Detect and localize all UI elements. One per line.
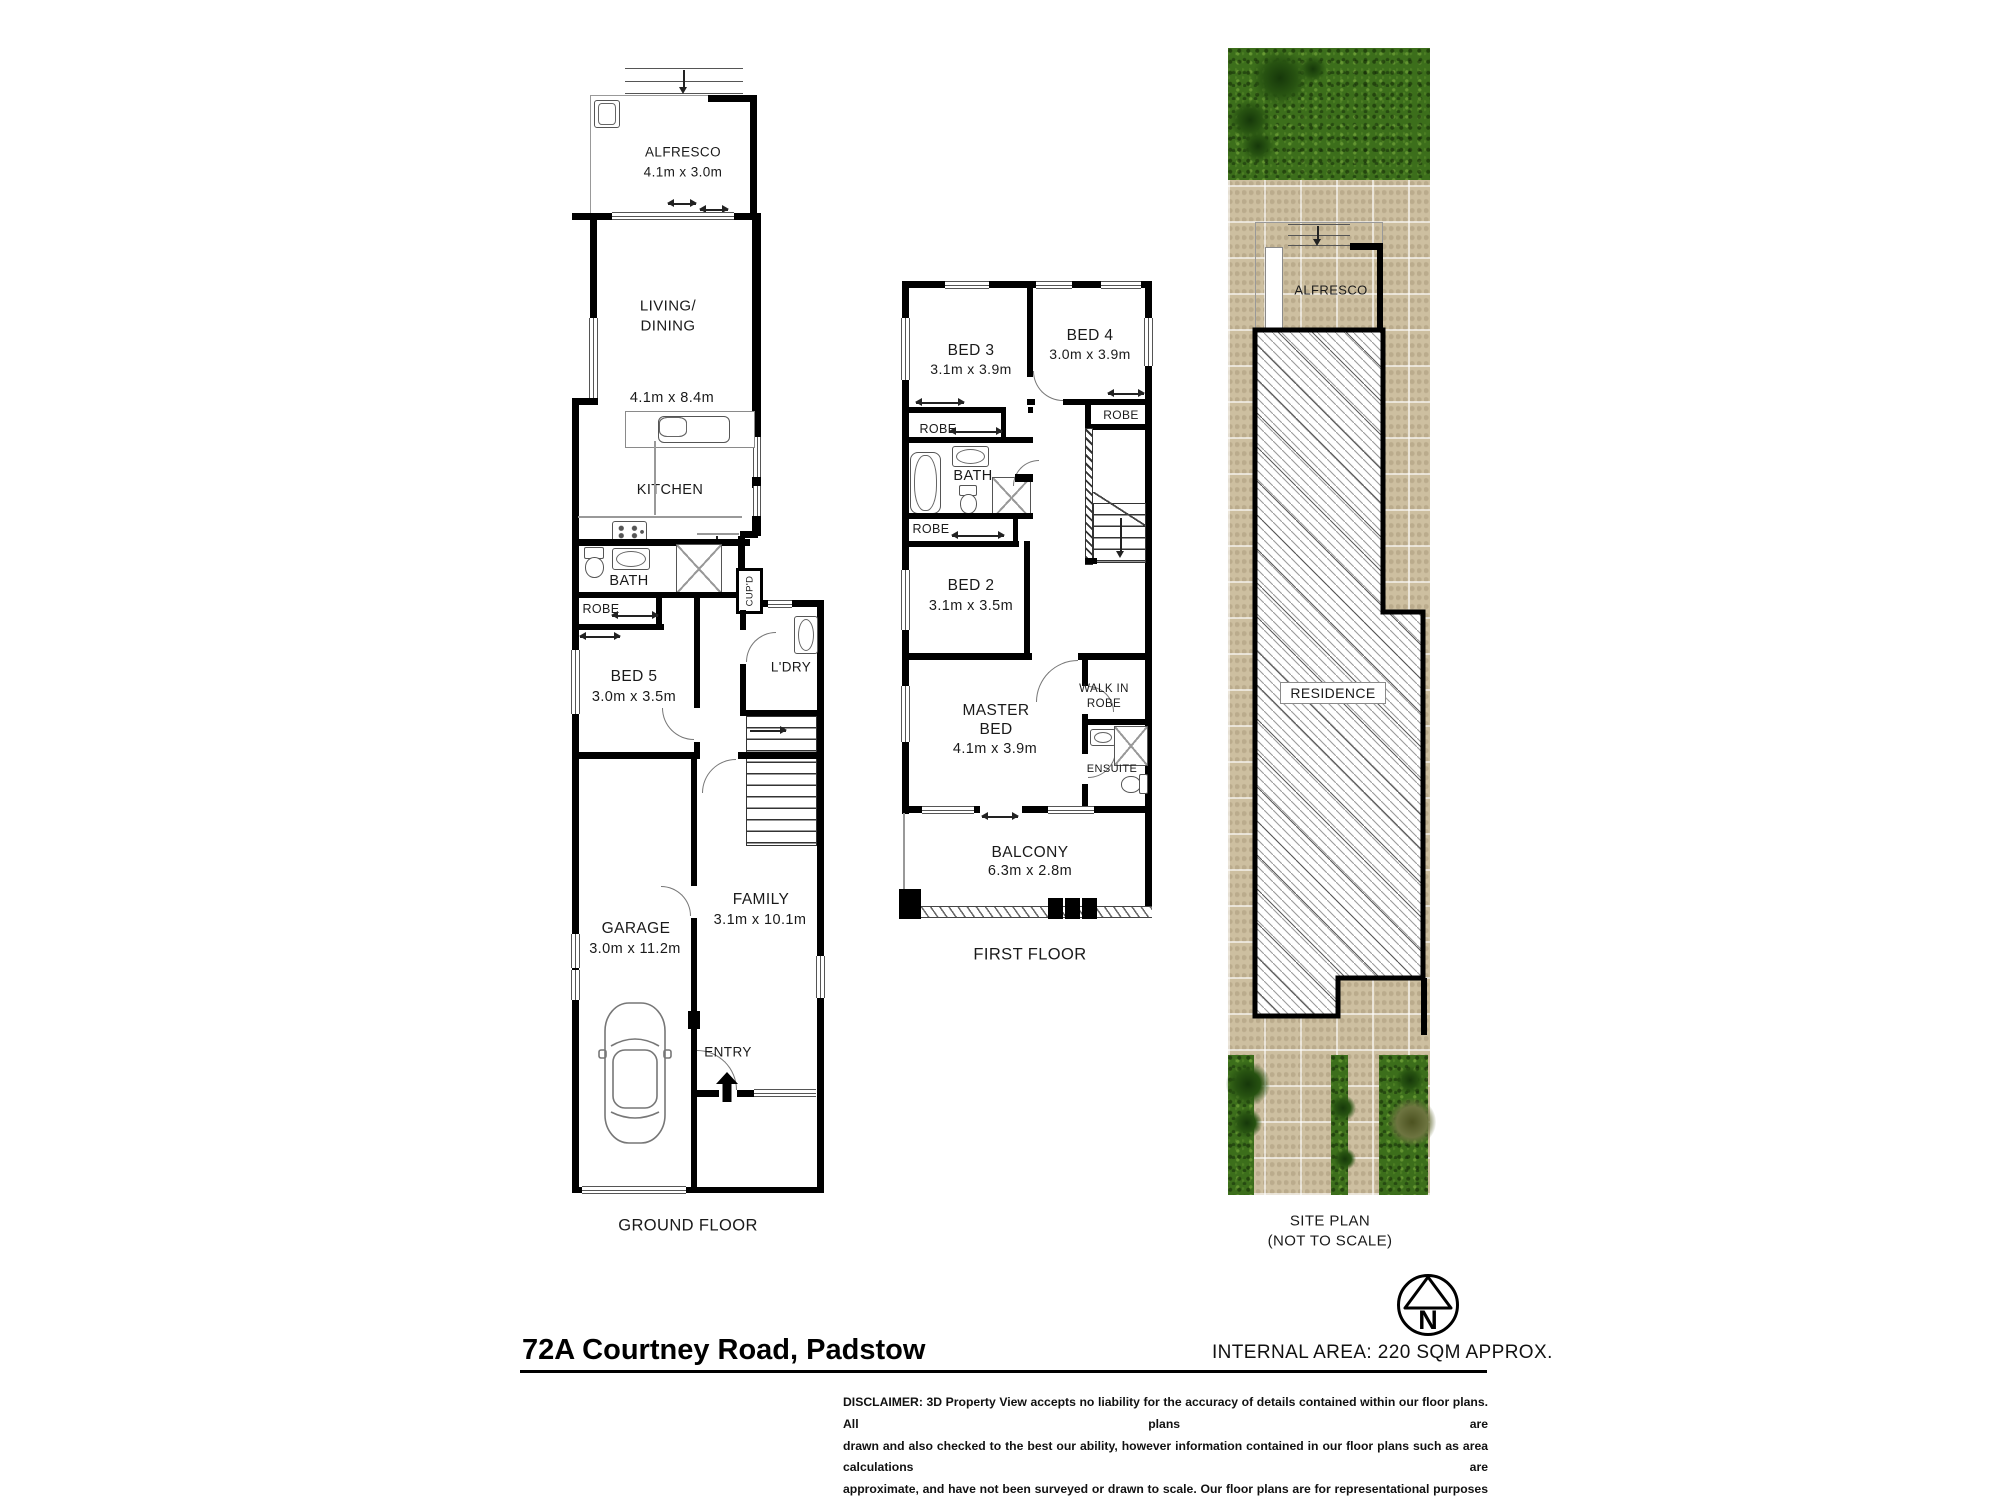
plant-icon: [1300, 56, 1326, 82]
room-label-bath-ff: BATH: [953, 468, 992, 484]
basin-icon: [1090, 729, 1116, 746]
room-label-wir-1: WALK IN: [1079, 683, 1129, 695]
wall-segment: [691, 1090, 719, 1097]
slide-arrow: [612, 615, 658, 617]
room-label-ensuite: ENSUITE: [1087, 763, 1137, 775]
room-dims-garage: 3.0m x 11.2m: [589, 941, 681, 957]
toilet-icon: [1121, 776, 1141, 793]
door-swing-arc: [1013, 460, 1039, 486]
room-label-cupd: CUP'D: [745, 576, 756, 607]
stairs-arrow-icon: [750, 730, 786, 732]
counter-edge: [578, 516, 742, 518]
wall-segment: [899, 889, 921, 919]
window: [901, 686, 910, 742]
wall-segment: [1048, 898, 1063, 919]
room-label-master-2: BED: [979, 721, 1012, 739]
room-label-bed3: BED 3: [948, 342, 995, 360]
bathtub-icon: [910, 452, 941, 514]
room-label-family: FAMILY: [733, 891, 789, 909]
wall-segment: [1145, 281, 1152, 914]
room-label-garage: GARAGE: [602, 920, 671, 938]
wall-segment: [572, 752, 824, 759]
door-swing-arc: [746, 632, 776, 662]
bbq-icon: [594, 100, 620, 128]
window: [1048, 806, 1094, 814]
window: [754, 1089, 816, 1097]
disclaimer-line: drawn and also checked to the best our a…: [843, 1436, 1488, 1480]
garage-door: [582, 1186, 686, 1194]
window: [901, 570, 910, 630]
step-edge: [697, 533, 739, 535]
wall-segment: [572, 539, 750, 546]
wall-segment: [1065, 898, 1080, 919]
slide-arrow: [982, 816, 1018, 818]
site-plan-label-1: SITE PLAN: [1290, 1213, 1370, 1230]
room-dims-bed2: 3.1m x 3.5m: [929, 598, 1013, 614]
plant-icon: [1330, 1095, 1356, 1121]
slide-arrow: [952, 535, 1004, 537]
slide-arrow: [580, 636, 620, 638]
stairs-arrow-icon: [1120, 518, 1122, 552]
room-label-bed5: BED 5: [611, 668, 658, 686]
disclaimer-line: approximate, and have not been surveyed …: [843, 1479, 1488, 1500]
window: [571, 650, 580, 714]
window: [816, 956, 825, 998]
wall-segment: [1015, 474, 1033, 482]
room-dims-bed5: 3.0m x 3.5m: [592, 689, 676, 705]
wall-segment: [737, 1090, 754, 1097]
wall-segment: [1024, 541, 1030, 659]
wall-segment: [902, 541, 1019, 547]
wall-segment: [1085, 424, 1152, 430]
slide-arrow: [916, 402, 964, 404]
room-label-living-2: DINING: [641, 318, 696, 335]
plant-icon: [1334, 1148, 1356, 1170]
wall-segment: [1082, 653, 1088, 814]
room-dims-master: 4.1m x 3.9m: [953, 741, 1037, 757]
shower-icon: [676, 544, 722, 594]
car-icon: [598, 1000, 672, 1146]
slide-arrow: [668, 203, 696, 205]
north-arrow-icon: N: [1395, 1272, 1461, 1338]
window: [589, 318, 598, 400]
basin-icon: [612, 548, 650, 570]
site-plan-label-2: (NOT TO SCALE): [1268, 1233, 1393, 1250]
grass-strip: [1331, 1055, 1348, 1195]
site-label-residence: RESIDENCE: [1290, 685, 1375, 701]
balcony-rail: [902, 906, 1152, 918]
door-swing-arc: [702, 759, 736, 793]
plant-icon: [1242, 130, 1274, 162]
disclaimer: DISCLAIMER: 3D Property View accepts no …: [843, 1392, 1488, 1500]
room-label-robe4: ROBE: [1103, 408, 1139, 422]
plant-icon: [1232, 1108, 1262, 1138]
room-label-living-1: LIVING/: [640, 298, 696, 315]
basin-icon: [952, 446, 989, 467]
step-arrow-icon: [683, 70, 685, 88]
door-swing-arc: [1036, 660, 1078, 702]
wall-segment: [817, 600, 824, 1193]
wall-segment: [750, 95, 757, 215]
wall-segment: [572, 624, 664, 630]
window: [571, 970, 580, 1000]
door-swing-arc: [662, 708, 694, 740]
property-address: 72A Courtney Road, Padstow: [522, 1334, 925, 1367]
plant-icon: [1388, 1098, 1436, 1146]
wall-segment: [902, 437, 1033, 443]
wall-segment: [1027, 281, 1033, 377]
counter-edge: [654, 441, 656, 515]
room-label-bed4: BED 4: [1067, 327, 1114, 345]
wall-segment: [902, 653, 1152, 660]
stair-balustrade: [1085, 428, 1093, 565]
floor-label-ground: GROUND FLOOR: [618, 1217, 758, 1236]
room-label-master-1: MASTER: [963, 702, 1030, 720]
wall-segment: [691, 752, 697, 1193]
shower-icon: [1114, 726, 1148, 766]
window: [768, 600, 792, 608]
wall-segment: [1013, 513, 1018, 547]
slide-arrow: [1108, 393, 1144, 395]
svg-text:N: N: [1418, 1305, 1438, 1335]
toilet-icon: [585, 557, 604, 578]
divider-rule: [520, 1370, 1487, 1373]
entry-arrow-icon: [716, 1072, 738, 1102]
room-dims-family: 3.1m x 10.1m: [714, 912, 807, 928]
disclaimer-line: DISCLAIMER: 3D Property View accepts no …: [843, 1392, 1488, 1436]
window: [1036, 281, 1072, 289]
window: [753, 486, 761, 518]
room-label-bed2: BED 2: [948, 577, 995, 595]
window: [922, 806, 974, 814]
toilet-icon: [1139, 774, 1148, 794]
laundry-tub-icon: [794, 616, 818, 654]
room-label-ldry: L'DRY: [771, 660, 811, 675]
floor-label-first: FIRST FLOOR: [973, 946, 1086, 965]
wall-segment: [1001, 407, 1006, 441]
wall-segment: [1082, 898, 1097, 919]
plant-icon: [1226, 1062, 1270, 1106]
room-label-robe2: ROBE: [912, 522, 949, 536]
internal-area-note: INTERNAL AREA: 220 SQM APPROX.: [1212, 1342, 1553, 1364]
window: [571, 934, 580, 968]
plant-icon: [1252, 50, 1308, 106]
room-dims-bed4: 3.0m x 3.9m: [1049, 346, 1130, 362]
room-dims-living: 4.1m x 8.4m: [630, 390, 714, 406]
floorplan-sheet: ALFRESCO 4.1m x 3.0m LIVING/ DINING 4.1m…: [0, 0, 2000, 1500]
plant-icon: [1396, 1066, 1424, 1094]
slide-arrow: [950, 431, 1002, 433]
room-label-wir-2: ROBE: [1087, 698, 1121, 710]
window: [1101, 281, 1141, 289]
window: [1144, 318, 1153, 366]
wall-segment: [1087, 719, 1152, 725]
toilet-icon: [960, 494, 977, 514]
kitchen-sink-icon: [658, 416, 730, 443]
window: [945, 281, 989, 289]
room-dims-alfresco: 4.1m x 3.0m: [644, 165, 723, 180]
room-dims-balcony: 6.3m x 2.8m: [988, 863, 1072, 879]
wall-segment: [1421, 978, 1427, 1035]
staircase: [746, 716, 817, 846]
wall-segment: [708, 95, 757, 102]
wall-segment: [688, 1011, 700, 1029]
door-swing-arc: [1033, 371, 1063, 401]
window: [612, 212, 734, 220]
room-label-kitchen: KITCHEN: [637, 482, 703, 498]
room-label-balcony: BALCONY: [992, 844, 1069, 862]
wall-segment: [752, 213, 761, 439]
room-dims-bed3: 3.1m x 3.9m: [930, 361, 1011, 377]
door-swing-arc: [661, 886, 691, 916]
wall-segment: [1085, 558, 1097, 564]
room-label-entry: ENTRY: [704, 1045, 752, 1060]
room-label-alfresco: ALFRESCO: [645, 145, 721, 160]
slide-arrow: [700, 209, 728, 211]
room-label-bath-gf: BATH: [609, 573, 648, 589]
window: [901, 318, 910, 380]
